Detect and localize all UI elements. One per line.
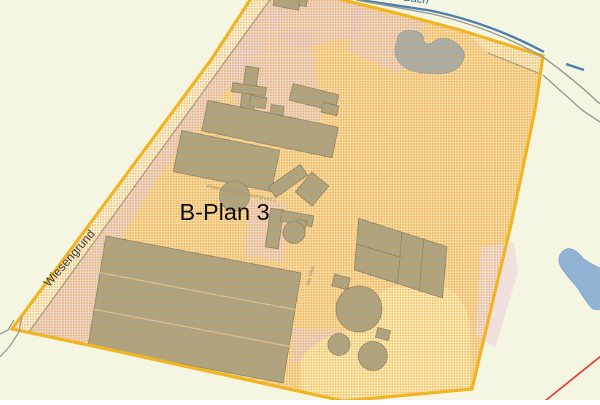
svg-text:B-Plan 3: B-Plan 3: [180, 199, 270, 225]
